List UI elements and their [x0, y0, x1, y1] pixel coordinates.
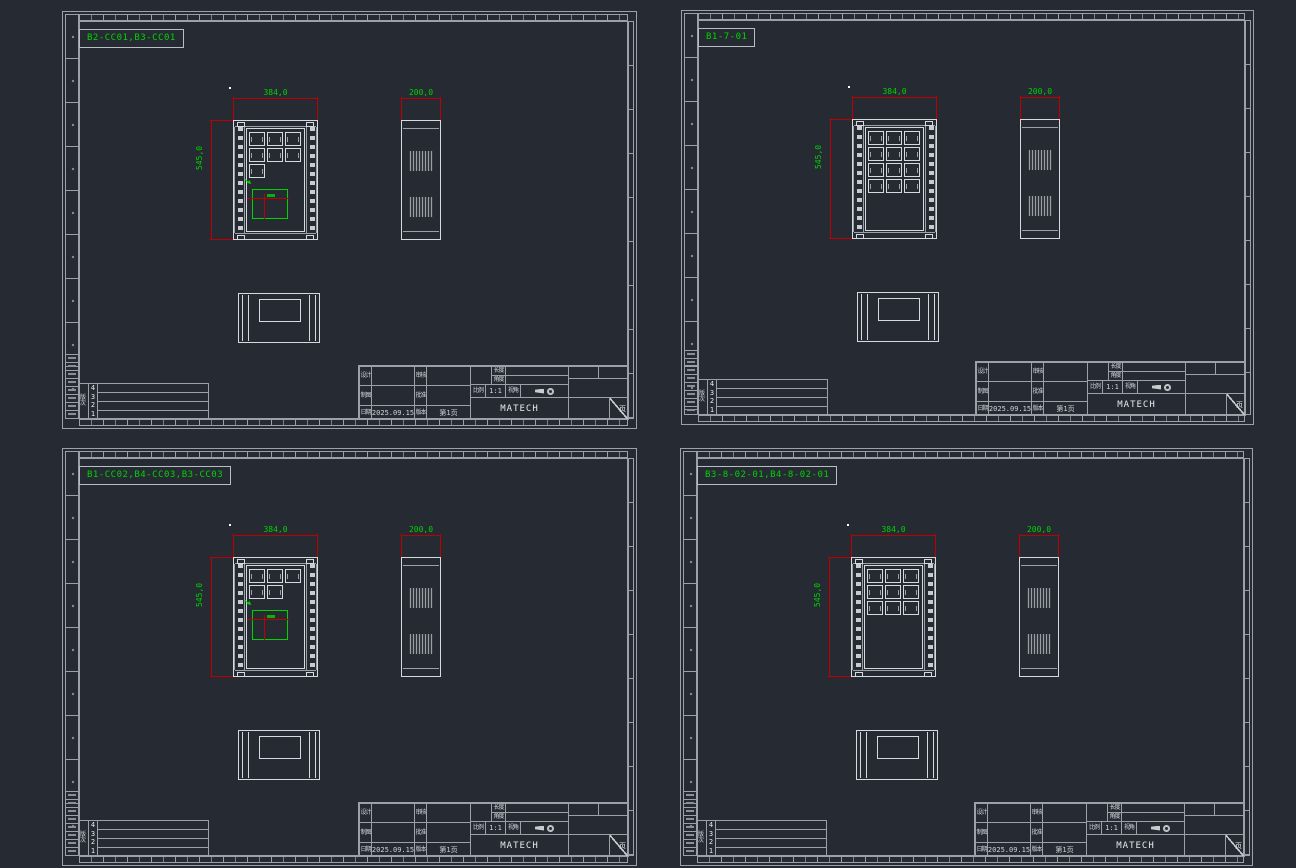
point-marker	[229, 524, 231, 526]
drawing-sheet[interactable]: B1-7-01 384,0 545,0	[681, 10, 1254, 425]
cabinet-left-rail	[853, 126, 864, 232]
ruler-strip-bottom	[698, 415, 1245, 422]
cabinet-top-view[interactable]	[238, 730, 320, 780]
checker-value	[426, 366, 471, 386]
module-slot	[285, 132, 301, 146]
approver-value	[1042, 822, 1087, 843]
side-top-cap	[1021, 558, 1057, 566]
module-row	[867, 601, 920, 615]
ruler-dense-cells	[66, 354, 78, 418]
height-dimension-line: 545,0	[829, 557, 830, 677]
tb-spacer	[470, 803, 492, 822]
side-dimension-line: 200,0	[401, 535, 441, 536]
top-view-right-flange	[927, 732, 934, 778]
vent-hatch-lower	[409, 197, 433, 217]
drafter-value	[371, 385, 415, 406]
date-value: 2025.09.15	[371, 842, 415, 857]
side-dimension-text: 200,0	[401, 526, 441, 534]
module-slot	[886, 131, 902, 145]
cad-canvas[interactable]: B2-CC01,B3-CC01 384,0 545,0	[0, 0, 1296, 868]
module-slot	[903, 585, 919, 599]
revision-row: 4	[707, 821, 715, 830]
sheet-code-label[interactable]: B1-CC02,B4-CC03,B3-CC03	[79, 466, 231, 485]
title-block: 设计 审核 制图 批准 日期 2025.09.15 版本 第1页 长度 角度 比…	[975, 361, 1245, 415]
vent-hatch-upper	[1027, 588, 1051, 608]
tb-spacer	[470, 366, 492, 385]
ruler-strip-left	[683, 451, 697, 856]
cabinet-top-view[interactable]	[857, 292, 939, 342]
ruler-strip-top	[79, 451, 628, 458]
ruler-strip-bottom	[697, 856, 1244, 863]
drawing-frame	[79, 21, 628, 419]
scale-label: 比例	[1087, 380, 1103, 394]
module-slot	[885, 601, 901, 615]
side-dimension-line: 200,0	[1020, 97, 1060, 98]
side-top-cap	[403, 558, 439, 566]
module-slot	[249, 148, 265, 162]
scale-value: 1:1	[485, 821, 506, 835]
revision-table: 版次 4 3 2 1	[79, 820, 209, 856]
first-angle-projection-icon	[535, 388, 554, 395]
detail-dim-h-line	[247, 619, 289, 620]
designer-value	[371, 803, 415, 823]
module-row	[868, 131, 921, 145]
module-grid	[868, 131, 921, 193]
width-dimension-text: 384,0	[852, 88, 937, 96]
module-grid	[249, 569, 302, 599]
module-slot	[885, 569, 901, 583]
projection-label: 视角	[1122, 380, 1138, 394]
vent-hatch-lower	[1028, 196, 1052, 216]
projection-cell	[1137, 380, 1186, 394]
company-name: MATECH	[470, 834, 569, 857]
point-marker	[848, 86, 850, 88]
module-row	[249, 585, 302, 599]
module-slot	[868, 179, 884, 193]
drawing-frame	[79, 458, 628, 856]
date-value: 2025.09.15	[987, 842, 1031, 857]
sheet-mark-icon: 页	[619, 404, 626, 414]
revision-row: 4	[89, 821, 97, 830]
module-row	[868, 163, 921, 177]
height-dimension-text: 545,0	[815, 145, 823, 169]
approver-value	[1043, 381, 1088, 402]
revision-numbers: 4 3 2 1	[707, 821, 716, 855]
top-view-cutout	[259, 299, 301, 322]
module-row	[249, 132, 302, 146]
height-dimension-line: 545,0	[830, 119, 831, 239]
side-dimension-line: 200,0	[401, 98, 441, 99]
side-outline	[1020, 119, 1060, 239]
cabinet-right-rail	[924, 564, 935, 670]
side-bottom-cap	[403, 231, 439, 239]
cabinet-top-view[interactable]	[856, 730, 938, 780]
diagonal-slash-icon: 页	[1225, 834, 1245, 857]
ruler-strip-bottom	[79, 419, 628, 426]
projection-label: 视角	[1121, 821, 1137, 835]
ruler-strip-right	[628, 458, 634, 856]
ruler-strip-left	[65, 451, 79, 856]
cabinet-top-cap	[853, 558, 934, 564]
detail-dim-h-line	[247, 198, 289, 199]
module-panel	[246, 128, 305, 232]
revision-row: 2	[89, 401, 97, 410]
cabinet-bottom-cap	[854, 232, 935, 238]
checker-value	[1042, 803, 1087, 823]
cabinet-left-rail	[852, 564, 863, 670]
title-block: 设计 审核 制图 批准 日期 2025.09.15 版本 第1页 长度 角度 比…	[358, 802, 628, 856]
top-view-left-flange	[861, 294, 868, 340]
first-angle-projection-icon	[1152, 384, 1171, 391]
cabinet-side-view[interactable]: 200,0	[1019, 557, 1059, 677]
module-slot	[886, 147, 902, 161]
ruler-strip-top	[79, 14, 628, 21]
projection-label: 视角	[505, 821, 521, 835]
detail-dim-microtext	[267, 194, 275, 197]
module-row	[868, 179, 921, 193]
date-value: 2025.09.15	[988, 401, 1032, 416]
cabinet-left-rail	[234, 564, 245, 670]
height-dimension-text: 545,0	[196, 583, 204, 607]
vent-hatch-upper	[1028, 150, 1052, 170]
sheet-code-label[interactable]: B3-8-02-01,B4-8-02-01	[697, 466, 837, 485]
top-view-cutout	[259, 736, 301, 759]
drawing-sheet[interactable]: B1-CC02,B4-CC03,B3-CC03 384,0 545,0	[62, 448, 637, 866]
cabinet-side-view[interactable]: 200,0	[401, 557, 441, 677]
revision-row: 4	[89, 384, 97, 393]
module-slot	[903, 601, 919, 615]
ruler-strip-left	[65, 14, 79, 419]
revision-column-label: 版次	[698, 821, 707, 855]
module-slot	[868, 163, 884, 177]
revision-row: 3	[708, 389, 716, 398]
ruler-strip-top	[697, 451, 1244, 458]
drawing-sheet[interactable]: B3-8-02-01,B4-8-02-01 384,0 545,0	[680, 448, 1253, 866]
sheet-mark-icon: 页	[619, 841, 626, 851]
sheet-mark-icon: 页	[1236, 400, 1243, 410]
company-name: MATECH	[470, 397, 569, 420]
module-row	[249, 569, 302, 583]
module-slot	[285, 148, 301, 162]
cabinet-right-rail	[925, 126, 936, 232]
cabinet-right-rail	[306, 127, 317, 233]
side-outline	[1019, 557, 1059, 677]
cabinet-front-view[interactable]: 384,0 545,0	[852, 119, 937, 239]
module-slot	[249, 585, 265, 599]
module-slot	[267, 132, 283, 146]
title-block: 设计 审核 制图 批准 日期 2025.09.15 版本 第1页 长度 角度 比…	[358, 365, 628, 419]
module-row	[868, 147, 921, 161]
module-row	[867, 569, 920, 583]
revision-table: 版次 4 3 2 1	[79, 383, 209, 419]
cabinet-front-view[interactable]: 384,0 545,0	[233, 557, 318, 677]
drafter-value	[371, 822, 415, 843]
tb-spacer	[1086, 803, 1108, 822]
top-view-cutout	[878, 298, 920, 321]
vent-hatch-lower	[1027, 634, 1051, 654]
module-panel	[865, 127, 924, 231]
projection-cell	[1136, 821, 1185, 835]
top-view-left-flange	[242, 732, 249, 778]
projection-cell	[520, 821, 569, 835]
scale-label: 比例	[470, 821, 486, 835]
projection-label: 视角	[505, 384, 521, 398]
tb-right-cell-c	[568, 378, 629, 398]
module-grid	[867, 569, 920, 615]
module-slot	[885, 585, 901, 599]
ruler-dense-cells	[684, 791, 696, 855]
tb-right-cell-c	[1184, 815, 1245, 835]
detail-dim-v-line	[264, 194, 265, 219]
revision-row: 2	[707, 838, 715, 847]
page-number: 第1页	[1043, 401, 1088, 416]
scale-label: 比例	[470, 384, 486, 398]
height-dimension-line: 545,0	[211, 120, 212, 240]
cabinet-top-cap	[235, 558, 316, 564]
revision-row: 3	[89, 393, 97, 402]
module-slot	[868, 131, 884, 145]
cabinet-side-view[interactable]: 200,0	[401, 120, 441, 240]
cabinet-outline	[233, 557, 318, 677]
revision-row: 3	[89, 830, 97, 839]
module-slot	[886, 179, 902, 193]
top-view-right-flange	[309, 295, 316, 341]
revision-table: 版次 4 3 2 1	[697, 820, 827, 856]
module-slot	[249, 132, 265, 146]
drafter-value	[988, 381, 1032, 402]
first-angle-projection-icon	[1151, 825, 1170, 832]
revision-row: 2	[708, 397, 716, 406]
module-panel	[246, 565, 305, 669]
diagonal-slash-icon: 页	[1226, 393, 1246, 416]
vent-hatch-upper	[409, 588, 433, 608]
module-slot	[903, 569, 919, 583]
top-view-left-flange	[860, 732, 867, 778]
drawing-frame	[697, 458, 1244, 856]
top-view-cutout	[877, 736, 919, 759]
revision-rows-area	[717, 380, 827, 414]
module-row	[249, 164, 302, 178]
top-view-right-flange	[309, 732, 316, 778]
module-slot	[267, 585, 283, 599]
module-slot	[267, 148, 283, 162]
module-slot	[904, 163, 920, 177]
scale-value: 1:1	[1101, 821, 1122, 835]
side-outline	[401, 120, 441, 240]
top-view-right-flange	[928, 294, 935, 340]
revision-row: 4	[708, 380, 716, 389]
module-slot	[904, 179, 920, 193]
revision-row: 1	[707, 847, 715, 856]
cabinet-top-view[interactable]	[238, 293, 320, 343]
module-slot	[867, 585, 883, 599]
detail-dim-v-line	[264, 615, 265, 640]
width-dimension-line: 384,0	[233, 535, 318, 536]
sheet-code-label[interactable]: B1-7-01	[698, 28, 755, 47]
checker-value	[1043, 362, 1088, 382]
height-dimension-text: 545,0	[196, 146, 204, 170]
point-marker	[229, 87, 231, 89]
cabinet-front-view[interactable]: 384,0 545,0	[233, 120, 318, 240]
leader-arrow-icon	[244, 179, 250, 184]
width-dimension-text: 384,0	[851, 526, 936, 534]
module-slot	[904, 131, 920, 145]
revision-numbers: 4 3 2 1	[89, 384, 98, 418]
revision-numbers: 4 3 2 1	[708, 380, 717, 414]
detail-dim-microtext	[267, 615, 275, 618]
module-slot	[249, 569, 265, 583]
module-slot	[867, 569, 883, 583]
cabinet-bottom-cap	[235, 670, 316, 676]
leader-arrow-icon	[244, 600, 250, 605]
revision-row: 1	[89, 847, 97, 856]
ruler-strip-right	[1245, 20, 1251, 415]
page-number: 第1页	[1042, 842, 1087, 857]
revision-rows-area	[98, 384, 208, 418]
cabinet-left-rail	[234, 127, 245, 233]
point-marker	[847, 524, 849, 526]
vent-hatch-lower	[409, 634, 433, 654]
first-angle-projection-icon	[535, 825, 554, 832]
drawing-frame	[698, 20, 1245, 415]
page-number: 第1页	[426, 405, 471, 420]
module-slot	[867, 601, 883, 615]
side-dimension-text: 200,0	[1020, 88, 1060, 96]
module-grid	[249, 132, 302, 178]
scale-value: 1:1	[485, 384, 506, 398]
revision-rows-area	[716, 821, 826, 855]
cabinet-bottom-cap	[235, 233, 316, 239]
tb-right-cell-d	[1184, 834, 1226, 857]
revision-column-label: 版次	[80, 821, 89, 855]
drafter-value	[987, 822, 1031, 843]
module-row	[867, 585, 920, 599]
side-dimension-line: 200,0	[1019, 535, 1059, 536]
tb-right-cell-d	[568, 397, 610, 420]
sheet-code-label[interactable]: B2-CC01,B3-CC01	[79, 29, 184, 48]
ruler-strip-left	[684, 13, 698, 415]
width-dimension-text: 384,0	[233, 89, 318, 97]
approver-value	[426, 822, 471, 843]
revision-row: 1	[708, 406, 716, 415]
page-number: 第1页	[426, 842, 471, 857]
revision-column-label: 版次	[80, 384, 89, 418]
vent-hatch-upper	[409, 151, 433, 171]
ruler-strip-top	[698, 13, 1245, 20]
cabinet-top-cap	[854, 120, 935, 126]
ruler-dense-cells	[685, 350, 697, 414]
cabinet-side-view[interactable]: 200,0	[1020, 119, 1060, 239]
detail-callout-box	[252, 610, 288, 640]
ruler-strip-right	[1244, 458, 1250, 856]
company-name: MATECH	[1086, 834, 1185, 857]
cabinet-front-view[interactable]: 384,0 545,0	[851, 557, 936, 677]
revision-numbers: 4 3 2 1	[89, 821, 98, 855]
diagonal-slash-icon: 页	[609, 397, 629, 420]
side-outline	[401, 557, 441, 677]
designer-value	[988, 362, 1032, 382]
cabinet-outline	[233, 120, 318, 240]
title-block: 设计 审核 制图 批准 日期 2025.09.15 版本 第1页 长度 角度 比…	[974, 802, 1244, 856]
module-slot	[249, 164, 265, 178]
module-slot	[267, 569, 283, 583]
detail-callout-box	[252, 189, 288, 219]
side-top-cap	[403, 121, 439, 129]
tb-right-cell-d	[1185, 393, 1227, 416]
module-slot	[868, 147, 884, 161]
module-slot	[886, 163, 902, 177]
tb-right-cell-d	[568, 834, 610, 857]
revision-row: 2	[89, 838, 97, 847]
side-dimension-text: 200,0	[1019, 526, 1059, 534]
side-top-cap	[1022, 120, 1058, 128]
projection-cell	[520, 384, 569, 398]
diagonal-slash-icon: 页	[609, 834, 629, 857]
width-dimension-line: 384,0	[852, 97, 937, 98]
ruler-strip-right	[628, 21, 634, 419]
module-slot	[285, 569, 301, 583]
width-dimension-line: 384,0	[851, 535, 936, 536]
tb-spacer	[1087, 362, 1109, 381]
date-value: 2025.09.15	[371, 405, 415, 420]
revision-column-label: 版次	[699, 380, 708, 414]
revision-row: 3	[707, 830, 715, 839]
module-slot	[904, 147, 920, 161]
cabinet-outline	[852, 119, 937, 239]
scale-label: 比例	[1086, 821, 1102, 835]
designer-value	[371, 366, 415, 386]
scale-value: 1:1	[1102, 380, 1123, 394]
module-panel	[864, 565, 923, 669]
revision-row: 1	[89, 410, 97, 419]
ruler-dense-cells	[66, 791, 78, 855]
width-dimension-text: 384,0	[233, 526, 318, 534]
ruler-strip-bottom	[79, 856, 628, 863]
width-dimension-line: 384,0	[233, 98, 318, 99]
side-bottom-cap	[1021, 668, 1057, 676]
sheet-mark-icon: 页	[1235, 841, 1242, 851]
tb-right-cell-c	[568, 815, 629, 835]
approver-value	[426, 385, 471, 406]
drawing-sheet[interactable]: B2-CC01,B3-CC01 384,0 545,0	[62, 11, 637, 429]
side-bottom-cap	[1022, 230, 1058, 238]
top-view-left-flange	[242, 295, 249, 341]
height-dimension-text: 545,0	[814, 583, 822, 607]
side-dimension-text: 200,0	[401, 89, 441, 97]
module-row	[249, 148, 302, 162]
cabinet-bottom-cap	[853, 670, 934, 676]
cabinet-outline	[851, 557, 936, 677]
company-name: MATECH	[1087, 393, 1186, 416]
designer-value	[987, 803, 1031, 823]
tb-right-cell-c	[1185, 374, 1246, 394]
height-dimension-line: 545,0	[211, 557, 212, 677]
cabinet-top-cap	[235, 121, 316, 127]
side-bottom-cap	[403, 668, 439, 676]
cabinet-right-rail	[306, 564, 317, 670]
revision-table: 版次 4 3 2 1	[698, 379, 828, 415]
checker-value	[426, 803, 471, 823]
revision-rows-area	[98, 821, 208, 855]
